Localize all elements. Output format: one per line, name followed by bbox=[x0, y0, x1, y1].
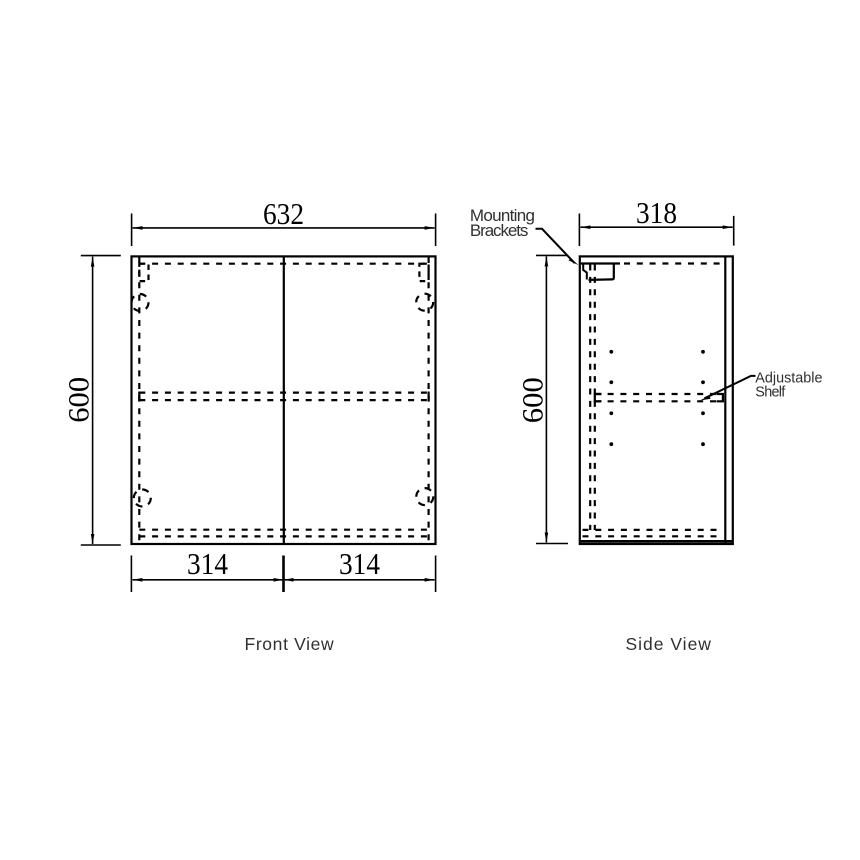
svg-text:Front View: Front View bbox=[244, 634, 334, 654]
svg-text:600: 600 bbox=[63, 377, 96, 423]
svg-text:600: 600 bbox=[517, 377, 550, 423]
svg-text:632: 632 bbox=[263, 196, 304, 231]
svg-text:Side View: Side View bbox=[625, 634, 712, 654]
svg-text:314: 314 bbox=[339, 546, 380, 581]
svg-text:Shelf: Shelf bbox=[755, 384, 786, 400]
svg-text:318: 318 bbox=[636, 195, 677, 230]
svg-text:Brackets: Brackets bbox=[470, 221, 528, 240]
svg-text:314: 314 bbox=[187, 546, 228, 581]
